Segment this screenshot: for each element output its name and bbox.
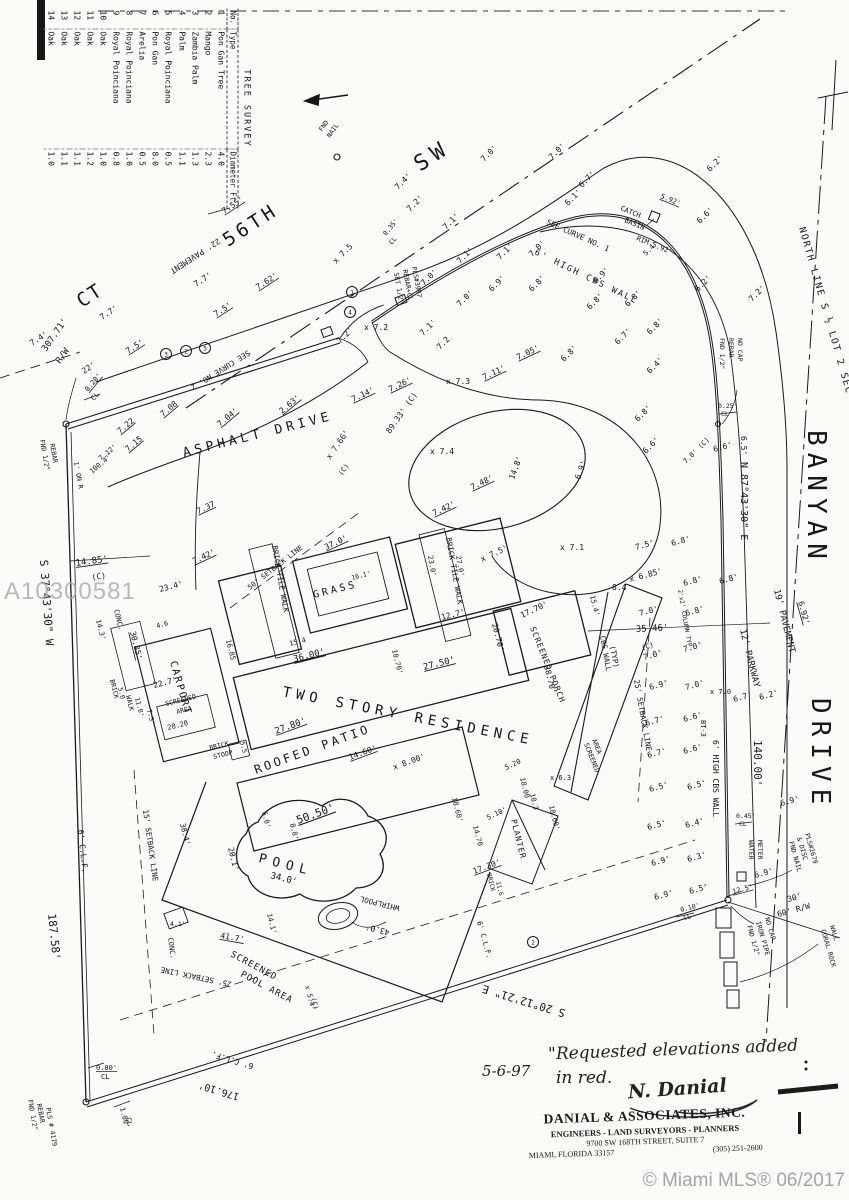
tree-row: 2Mango2.3: [201, 9, 214, 209]
map-label: 6.9': [487, 273, 507, 293]
map-label: 6.2': [705, 153, 725, 173]
map-label: GRASS: [312, 579, 358, 601]
map-label: CL: [721, 410, 729, 418]
map-label: 30': [786, 891, 802, 903]
map-label: 6.5': [648, 780, 669, 794]
map-label: 7.08: [159, 399, 180, 418]
tree-cell: 1.0: [122, 149, 135, 209]
map-label: NO CAP: [736, 338, 744, 362]
map-label: 20.1': [226, 846, 241, 872]
map-label: 10.3: [528, 793, 540, 811]
tree-cell: Oak: [96, 29, 109, 149]
map-label: CL: [89, 391, 101, 403]
map-label: BASIN: [623, 216, 646, 231]
tree-cell: Oak: [83, 29, 96, 149]
west-boundary-line: [66, 424, 86, 1102]
north-arrow-mark: [305, 95, 348, 105]
tree-cell: Oak: [56, 29, 69, 149]
survey-sheet: SW56THCTFNDNAIL7.55'22' PAVEMENTSEE CURV…: [0, 0, 849, 1200]
map-label: 0.20': [83, 372, 103, 393]
map-label: 16.1': [351, 569, 372, 581]
map-label: 5.5: [238, 741, 249, 754]
map-label: 23.0': [426, 555, 438, 577]
tree-marker-number: 1: [350, 289, 354, 296]
map-label: 6.6': [641, 435, 661, 455]
map-label: 0.35': [381, 217, 400, 237]
map-label: REBAR: [727, 338, 735, 358]
tree-row: 4Palm1.1: [174, 9, 187, 209]
leader-lines: [66, 219, 818, 982]
map-label: 7.5': [124, 338, 145, 356]
tree-cell: 4: [174, 9, 187, 29]
tree-cell: Mango: [201, 29, 214, 149]
coral-rock-wall-segment: [724, 962, 737, 986]
tree-cell: 1.1: [70, 149, 83, 209]
map-label: 7.5': [634, 538, 655, 552]
map-label: 7.62': [254, 271, 279, 292]
map-label: 7.11': [481, 363, 507, 381]
map-label: 7.7': [192, 271, 213, 289]
tree-row: 13Oak1.1: [56, 9, 69, 209]
tree-cell: 10: [96, 9, 109, 29]
map-label: x 7.66': [324, 428, 351, 461]
pen-mark-dot: [805, 1068, 808, 1071]
tree-marker-number: 2: [531, 939, 535, 946]
gate-post-west: [321, 327, 333, 338]
map-label: 50.50': [295, 801, 337, 827]
map-label: 22.7': [152, 675, 178, 690]
map-label: 14.1': [265, 913, 278, 935]
map-label: 15.4': [588, 595, 601, 617]
tree-row: 1Pon Gan Tree4.0: [214, 9, 228, 209]
map-label: 7.2': [747, 283, 767, 303]
map-label: 89.33' (C): [384, 391, 419, 436]
map-label: 12' PARKWAY: [737, 628, 761, 689]
coral-rock-wall-segment: [727, 990, 739, 1008]
map-label: 6.8': [527, 273, 547, 293]
map-label: 28.20: [167, 719, 189, 732]
tree-marker-number: 5: [203, 345, 207, 352]
map-label: 6.7': [732, 690, 753, 704]
map-label: 6.2': [693, 273, 713, 293]
tree-row: 3Zambia Palm1.3: [187, 9, 200, 209]
map-label: 6.6': [712, 440, 733, 454]
tree-row: 10Oak1.0: [96, 9, 109, 209]
map-label: 6.9': [779, 794, 800, 808]
map-label: 2'x2' COLUMN TYP: [676, 589, 693, 648]
tree-cell: Oak: [43, 29, 56, 149]
tree-cell: Pon Gan Tree: [214, 29, 228, 149]
map-label: 4.6: [156, 619, 169, 630]
tree-cell: 1.3: [187, 149, 200, 209]
map-label: 6.8': [670, 534, 691, 548]
map-label: PLS # 4179: [44, 1107, 59, 1147]
map-label: DRIVE: [805, 698, 835, 811]
map-label: 7.4': [393, 171, 413, 191]
map-label: 6.8': [682, 574, 703, 588]
map-label: 7.7': [98, 304, 119, 322]
map-label: 19' PAVEMENT: [771, 588, 797, 654]
map-label: FND 1/2": [718, 338, 726, 369]
map-label: 6.8': [585, 291, 605, 311]
map-label: 14.3': [94, 619, 107, 641]
tree-row: 6Pon Gan8.0: [148, 9, 161, 209]
south-fence-double-line: [86, 900, 728, 1107]
map-label: 6.92': [796, 600, 811, 626]
map-label: R/W: [54, 346, 72, 366]
tree-cell: 0.5: [135, 149, 148, 209]
map-label: 6.8': [684, 604, 705, 618]
tree-cell: Royal Poinciana: [161, 29, 174, 149]
map-label: 60' R/W: [776, 901, 811, 918]
tree-cell: Pon Gan: [148, 29, 161, 149]
map-label: 7.37: [195, 499, 216, 515]
section-line-tick: [818, 60, 848, 130]
tree-cell: 1.0: [43, 149, 56, 209]
tree-cell: 1.1: [56, 149, 69, 209]
map-label: 6.9': [650, 854, 671, 868]
tree-cell: 1.0: [96, 149, 109, 209]
map-label: 6.7': [577, 169, 597, 189]
map-label: 5.92': [659, 192, 682, 207]
tree-cell: 0.8: [109, 149, 122, 209]
map-label: x 7.0: [710, 688, 731, 696]
map-label: 0.45': [736, 812, 756, 820]
mls-watermark: © Miami MLS® 06/2017: [643, 1170, 845, 1192]
map-label: 15' SETBACK LINE: [141, 809, 160, 882]
map-label: 6' HIGH CBS WALL: [533, 248, 640, 307]
tree-cell: 9: [109, 9, 122, 29]
tree-row: 5Royal Poinciana0.5: [161, 9, 174, 209]
map-label: 6.5': [688, 882, 709, 896]
map-label: 1' ON R: [72, 461, 85, 489]
map-label: 7.5': [212, 301, 233, 319]
map-label: 7.0' (C): [682, 436, 711, 465]
tree-cell: 2.3: [201, 149, 214, 209]
tree-cell: 6: [148, 9, 161, 29]
map-label: 7.0': [684, 678, 705, 692]
map-label: 6.8': [633, 403, 653, 423]
map-label: 6.8': [718, 572, 739, 586]
map-label: 140.00': [751, 740, 764, 786]
roofed-patio-outline: [237, 727, 479, 851]
map-label: 7.0': [455, 288, 475, 308]
map-label: 6.9': [753, 866, 774, 880]
map-label: CL: [739, 820, 747, 828]
map-label: x 6.85': [628, 567, 663, 584]
tree-row: 12Oak1.1: [70, 9, 83, 209]
tree-cell: Royal Poinciana: [122, 29, 135, 149]
tree-cell: 13: [56, 9, 69, 29]
map-label: 27.50': [422, 655, 456, 673]
map-label: 7.1': [418, 317, 438, 337]
map-label: 6.0': [260, 811, 272, 829]
map-label: 10.70': [390, 649, 404, 675]
surveyor-phone: (305) 251-2600: [712, 1143, 762, 1154]
map-label: 17.70': [519, 599, 549, 619]
map-label: 6.4': [645, 355, 665, 375]
tree-row: 14Oak1.0: [43, 9, 56, 209]
map-label: 18.60': [450, 797, 464, 823]
map-label: PLANTER: [509, 818, 528, 860]
map-label: CL: [387, 235, 398, 246]
note-date: 5-6-97: [482, 1062, 530, 1080]
map-label: 8.4: [612, 583, 627, 592]
map-label: 22' PAVEMENT: [168, 236, 222, 275]
map-label: 7.26': [387, 375, 413, 393]
map-label: BT-3: [699, 720, 707, 737]
tree-survey-table: TREE SURVEY No. Type Diameter Ft 1Pon Ga…: [8, 8, 253, 208]
tree-cell: Arelia: [135, 29, 148, 149]
map-label: 38.70': [542, 664, 558, 694]
map-label: x 7.1: [560, 543, 584, 552]
map-label: 7.0': [547, 141, 567, 161]
map-label: 35.46': [636, 623, 669, 635]
map-label: CONC.: [166, 937, 177, 959]
map-label: 6.3': [686, 850, 707, 864]
map-label: BANYAN: [801, 430, 831, 566]
map-label: 4.1': [170, 920, 186, 928]
driveway-island: [395, 391, 599, 550]
map-label: CL: [101, 1073, 109, 1081]
whirlpool-inner: [325, 906, 352, 925]
map-label: x 8.00': [392, 752, 427, 772]
map-label: WHIRLPOOL: [358, 894, 400, 913]
map-label: 7.1': [495, 241, 515, 261]
map-label: x 7.2: [364, 323, 388, 332]
map-label: 14.70: [471, 825, 484, 847]
map-label: 7.04': [216, 406, 240, 428]
tree-row: 11Oak1.2: [83, 9, 96, 209]
map-label: x 7.4: [430, 447, 454, 456]
tree-col-type: Type: [227, 29, 238, 149]
map-label: 6.8': [645, 316, 665, 336]
map-label: SW: [410, 135, 456, 177]
map-label: 41.7': [220, 931, 245, 944]
map-label: 6.9': [648, 678, 669, 692]
map-label: 6.1': [563, 187, 583, 207]
tree-cell: 14: [43, 9, 56, 29]
whirlpool-outline: [315, 899, 360, 934]
map-label: 7.1': [441, 211, 461, 231]
tree-cell: 1: [214, 9, 228, 29]
map-label: 7.2': [405, 193, 425, 213]
map-label: 23.4': [158, 579, 184, 594]
tree-col-diameter: Diameter Ft: [227, 149, 238, 209]
map-label: 5.20: [503, 757, 522, 771]
tree-cell: 2: [201, 9, 214, 29]
map-label: 7.0': [479, 143, 499, 163]
tree-row: 8Royal Poinciana1.0: [122, 9, 135, 209]
tree-cell: 4.0: [214, 149, 228, 209]
map-label: 6.2': [758, 688, 779, 702]
pen-mark-bar: [798, 1112, 801, 1134]
map-label: x 7.5': [479, 543, 509, 563]
listing-id-watermark: A10300581: [4, 578, 136, 606]
map-label: x 7.5: [331, 242, 355, 266]
map-label: 14.8': [507, 455, 524, 481]
tree-marker-number: 4: [348, 309, 352, 316]
map-label: 6.5': [739, 436, 748, 455]
tree-cell: 1.2: [83, 149, 96, 209]
map-label: 7.22: [116, 416, 137, 435]
tree-cell: 5: [161, 9, 174, 29]
map-label: CT: [73, 279, 108, 312]
map-label: 0.25': [718, 402, 738, 410]
tree-table-body: 1Pon Gan Tree4.02Mango2.33Zambia Palm1.3…: [43, 9, 227, 209]
map-label: 7.2': [335, 325, 355, 345]
tree-col-no: No.: [227, 9, 238, 29]
map-label: 14.60': [348, 744, 378, 762]
tree-row: 7Arelia0.5: [135, 9, 148, 209]
tree-cell: 8.0: [148, 149, 161, 209]
map-label: SEE CURVE NO. 2: [189, 348, 251, 392]
tree-cell: Palm: [174, 29, 187, 149]
tree-marker-number: 3: [164, 351, 168, 358]
map-label: 6' HIGH CBS WALL: [711, 740, 720, 817]
map-label: 6' C.L.F.: [475, 920, 493, 959]
tree-cell: 7: [135, 9, 148, 29]
tree-markers: 325142: [161, 287, 539, 948]
map-label: 7.2: [435, 335, 452, 352]
driveway-to-carport-edge: [195, 452, 200, 590]
map-label: 7.05': [515, 343, 541, 361]
map-label: 7.15: [124, 434, 145, 453]
note-line2: in red.: [556, 1068, 612, 1088]
map-label: 6.8': [559, 343, 579, 363]
tree-cell: 1.1: [174, 149, 187, 209]
coral-rock-wall-segment: [720, 932, 734, 958]
water-meter-box: [737, 872, 746, 881]
map-label: 25' SETBACK LINE: [159, 965, 232, 989]
pen-mark-dot: [805, 1061, 808, 1064]
map-label: 6.7': [613, 326, 633, 346]
map-label: 43.0': [365, 922, 391, 937]
map-label: WALK: [124, 695, 136, 712]
tree-cell: Royal Poinciana: [109, 29, 122, 149]
map-label: 14.85': [75, 555, 109, 569]
map-label: 18.60': [547, 805, 561, 831]
map-label: S 20°12'21" E: [481, 982, 567, 1020]
cbs-wall-inner-gap: [372, 215, 728, 898]
map-label: 0.80': [96, 1064, 117, 1072]
tree-cell: Oak: [70, 29, 83, 149]
map-label: 30.85': [128, 630, 144, 660]
map-label: ASPHALT DRIVE: [181, 409, 334, 461]
tree-cell: 0.5: [161, 149, 174, 209]
map-label: 7.5': [145, 709, 157, 726]
surveyor-block: DANIAL & ASSOCIATES, INC. ENGINEERS - LA…: [519, 1104, 771, 1161]
map-label: 6.5': [686, 778, 707, 792]
map-label: N 87°43'30" E: [738, 462, 749, 540]
tree-cell: 3: [187, 9, 200, 29]
catch-basin-box: [648, 211, 660, 223]
map-label: ROOFED PATIO: [252, 722, 372, 777]
coral-rock-wall-segment: [716, 908, 731, 928]
map-label: METER: [756, 840, 764, 860]
cbs-wall-line: [372, 215, 728, 898]
map-label: 16.85: [224, 639, 237, 661]
map-label: 6.9': [573, 460, 588, 481]
map-label: x 6.3: [550, 774, 571, 782]
map-label: (C): [337, 462, 351, 477]
map-label: 6.4': [684, 816, 705, 830]
map-label: 12.5': [731, 883, 753, 896]
map-label: 187.58': [45, 913, 63, 960]
map-label: 176.10': [197, 1079, 241, 1102]
tree-survey-title: TREE SURVEY: [239, 9, 253, 209]
map-label: 6.5': [646, 818, 667, 832]
pen-mark-dash: [778, 1086, 838, 1092]
map-label: 5.10': [485, 806, 507, 822]
tree-marker-number: 2: [184, 348, 188, 355]
tree-cell: 12: [70, 9, 83, 29]
west-fence-line: [71, 432, 90, 1100]
map-label: 7.42': [431, 499, 457, 517]
map-label: 27.80': [274, 716, 308, 737]
tree-cell: Zambia Palm: [187, 29, 200, 149]
map-label: x 7.3: [446, 377, 470, 386]
map-label: 12.7': [440, 607, 466, 622]
annotation-labels: SW56THCTFNDNAIL7.55'22' PAVEMENTSEE CURV…: [26, 119, 849, 1147]
map-label: 6.9': [653, 888, 674, 902]
map-label: 6.6': [695, 205, 715, 225]
map-label: 6.6': [682, 742, 703, 756]
found-nail-point: [334, 154, 340, 160]
tree-cell: 11: [83, 9, 96, 29]
map-label: 20.70': [490, 622, 506, 652]
map-label: SEE CURVE NO. 1: [545, 218, 611, 254]
map-label: 6' C.L.F.: [210, 1049, 254, 1070]
tree-row: 9Royal Poinciana0.8: [109, 9, 122, 209]
map-label: 7.14': [350, 385, 376, 403]
map-label: 7.48': [469, 473, 495, 491]
tree-cell: 8: [122, 9, 135, 29]
map-label: WATER: [747, 840, 755, 860]
setback-25ft-south-line: [120, 840, 695, 1020]
